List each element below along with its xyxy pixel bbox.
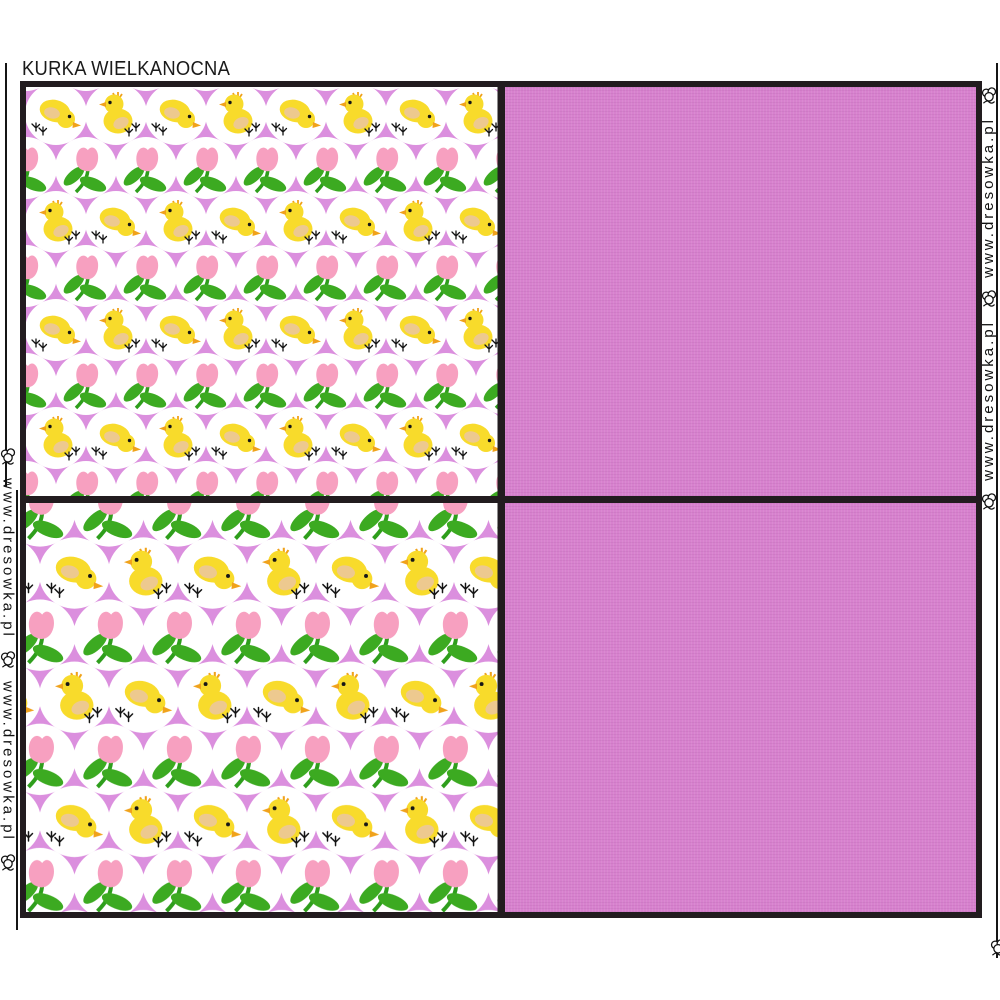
fabric-panel-sheet: KURKA WIELKANOCNA www.dresowka.pl www.dr…: [0, 0, 1000, 1000]
chick-tulip-pattern-small: [26, 87, 498, 496]
panel-solid-top-right: [505, 87, 977, 496]
margin-rule-left-upper: [5, 63, 7, 487]
watermark-url: www.dresowka.pl: [1, 478, 16, 639]
panel-pattern-top-left: [26, 87, 498, 496]
chick-tulip-pattern-large: [26, 503, 498, 912]
right-watermark-column: www.dresowka.pl www.dresowka.pl: [981, 86, 996, 512]
panel-grid: [20, 81, 982, 918]
cotton-flower-icon: [990, 938, 1000, 958]
cotton-flower-icon: [0, 650, 16, 670]
cotton-flower-icon: [981, 492, 997, 512]
cotton-flower-icon: [0, 853, 16, 873]
cotton-flower-icon: [981, 86, 997, 106]
panel-solid-bottom-right: [505, 503, 977, 912]
watermark-url: www.dresowka.pl: [981, 117, 996, 278]
panel-pattern-bottom-left: [26, 503, 498, 912]
watermark-url: www.dresowka.pl: [1, 681, 16, 842]
cotton-flower-icon: [0, 447, 16, 467]
left-watermark-column: www.dresowka.pl www.dresowka.pl: [0, 447, 16, 873]
watermark-url: www.dresowka.pl: [981, 320, 996, 481]
page-title: KURKA WIELKANOCNA: [22, 59, 230, 79]
cotton-flower-icon: [981, 289, 997, 309]
